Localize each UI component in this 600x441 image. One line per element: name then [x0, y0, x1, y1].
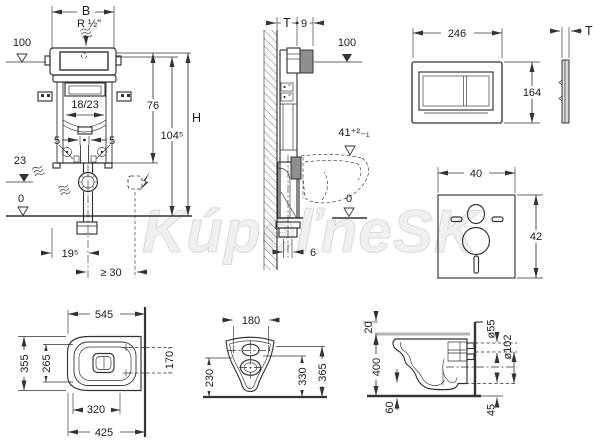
dim-label-170: 170	[164, 351, 176, 369]
dim-label-180: 180	[242, 315, 260, 327]
dim-label-355: 355	[19, 354, 31, 372]
actuator-box	[300, 50, 313, 73]
dim-label-42: 42	[530, 231, 542, 243]
drain-assembly	[58, 163, 98, 278]
dim-label-min-30: ≥ 30	[100, 267, 121, 279]
flush-plate-view: 246 164 T	[412, 24, 593, 123]
dim-label-425: 425	[95, 427, 113, 439]
dim-pad-width: 40	[438, 166, 515, 193]
level-label-23: 23	[14, 155, 26, 167]
level-marker-filled-icon	[19, 174, 29, 182]
level-label-100: 100	[13, 37, 31, 49]
dim-320: 320	[73, 393, 120, 416]
dim-label-40: 40	[470, 168, 482, 180]
dim-label-400: 400	[371, 358, 383, 376]
dim-height-365: 365	[316, 347, 330, 398]
dim-label-6: 6	[310, 247, 316, 259]
dim-wc-depth: 545	[68, 307, 145, 334]
water-flow-icon	[58, 184, 71, 197]
wc-plan-body	[68, 337, 142, 391]
level-label-0: 0	[346, 193, 352, 205]
dim-label-h: H	[192, 111, 201, 125]
fixing-hole-marks	[123, 344, 130, 377]
dim-label-265: 265	[41, 354, 53, 372]
wc-outline-dashed	[301, 154, 369, 203]
dim-label-d102: ø102	[502, 334, 514, 359]
dim-min-clearance: ≥ 30	[77, 267, 146, 279]
wc-rear-view: 180 230 330 365	[203, 315, 330, 397]
dim-height-330: 330	[296, 356, 310, 397]
dim-label-45: 45	[486, 404, 498, 416]
level-marker-23: 23	[6, 155, 45, 182]
wc-rear-body	[226, 337, 274, 391]
dim-outlet-diameter: ø102	[502, 334, 514, 383]
dim-inlet-diameter: ø55	[486, 320, 498, 361]
dim-label-545: 545	[95, 309, 113, 321]
dim-label-18-23: 18/23	[71, 99, 99, 111]
dim-height-230: 230	[203, 358, 217, 397]
flush-plate-face	[412, 62, 502, 123]
frame-profile	[280, 48, 313, 218]
level-marker-100-side: 100	[314, 37, 362, 62]
vertical-dimensions: 76 104⁵ H	[112, 53, 201, 216]
dim-label-365: 365	[317, 363, 329, 381]
level-marker-100: 100	[6, 37, 46, 62]
wall-hatch	[264, 30, 277, 270]
flush-bend-housing	[287, 48, 300, 73]
level-marker-filled-icon	[342, 54, 352, 62]
dim-label-320: 320	[87, 404, 105, 416]
level-label-100: 100	[338, 37, 356, 49]
dim-seat-thickness: 20	[363, 313, 376, 343]
level-label-41: 41⁺²₋₁	[338, 127, 370, 139]
wc-plan-view: 545 355 265 170 320	[18, 307, 177, 439]
dim-label-60: 60	[384, 401, 396, 413]
dim-label-5-right: 5	[109, 135, 115, 147]
dim-label-164: 164	[523, 87, 541, 99]
dim-label-b: B	[82, 4, 90, 18]
inlet-spigot	[467, 343, 474, 349]
dim-label-230: 230	[204, 369, 216, 387]
installation-drawing: KúpeľneSK B R ½" 100	[0, 0, 600, 441]
technical-drawing-page: KúpeľneSK B R ½" 100	[0, 0, 600, 441]
dim-label-r-half-inch: R ½"	[77, 18, 101, 30]
level-label-0: 0	[18, 193, 24, 205]
dim-rear-clearance: 45	[486, 375, 498, 417]
wc-side-body	[393, 339, 474, 390]
water-supply-connection: R ½"	[77, 18, 101, 46]
dim-seat-height: 400	[370, 334, 384, 396]
dim-label-19-5: 19⁵	[62, 248, 79, 260]
wc-connector	[291, 157, 301, 179]
outlet-spigot	[467, 354, 474, 360]
frame-structure	[38, 48, 191, 168]
dim-label-t: T	[283, 16, 291, 30]
dim-label-246: 246	[448, 28, 466, 40]
dim-plate-thickness: T	[551, 24, 593, 58]
flush-buttons	[419, 72, 493, 113]
dim-label-20: 20	[363, 321, 375, 333]
flush-plate-side-profile	[559, 60, 569, 123]
dim-label-5-left: 5	[54, 135, 60, 147]
level-marker-41: 41⁺²₋₁	[338, 127, 370, 155]
dim-label-t-plate: T	[585, 24, 593, 38]
dim-pad-height: 42	[517, 195, 550, 278]
dim-label-9: 9	[301, 18, 307, 30]
dim-label-76: 76	[147, 100, 159, 112]
dim-tank-depth: 18/23	[66, 98, 104, 115]
electrical-bolt-icon	[139, 172, 150, 191]
dim-plate-height: 164	[504, 62, 547, 123]
dim-plate-width: 246	[413, 26, 502, 58]
level-marker-open-icon	[17, 54, 27, 62]
wc-side-view: 20 400 60 ø55 ø102 45	[363, 313, 517, 416]
dim-label-330: 330	[297, 367, 309, 385]
dim-label-d55: ø55	[486, 320, 498, 339]
dim-label-104-5: 104⁵	[161, 130, 184, 142]
water-flow-icon	[32, 165, 45, 178]
dim-front-clearance: 60	[384, 399, 397, 414]
dim-drain-offset: 19⁵	[42, 228, 98, 260]
